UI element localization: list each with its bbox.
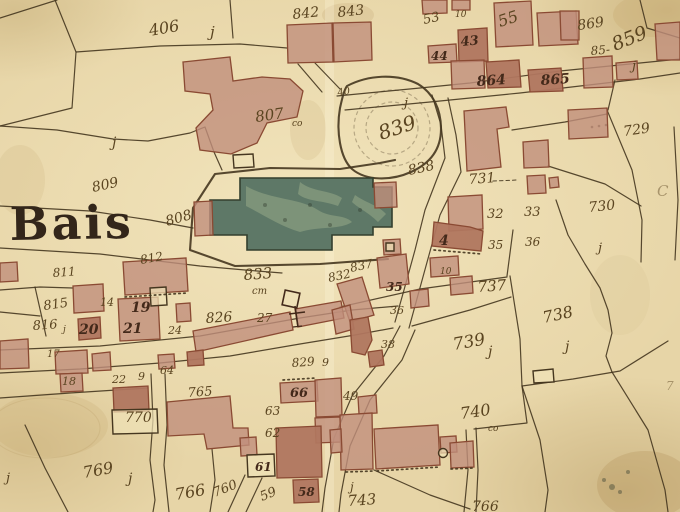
parcel-number: co [292, 119, 303, 129]
parcel-number: 843 [337, 2, 365, 21]
map-mark [626, 470, 630, 474]
map-mark [308, 203, 312, 207]
parcel-boundary-line [0, 312, 40, 316]
church-west-wing [194, 201, 213, 236]
parcel-number: 32 [487, 207, 504, 222]
map-mark [358, 208, 362, 212]
parcel-boundary-line [510, 276, 522, 386]
parcel-number: 737 [477, 276, 507, 296]
parcel-number: co [488, 424, 499, 434]
parcel-number: C [657, 182, 669, 200]
parcel-number: 21 [122, 321, 142, 337]
building [358, 395, 377, 414]
building [176, 303, 191, 322]
map-mark [609, 484, 615, 490]
parcel-number: 842 [292, 4, 320, 23]
building [386, 243, 394, 251]
parcel-number: 807 [254, 104, 285, 126]
parcel-number: 35 [386, 280, 403, 294]
building [452, 0, 470, 10]
building [150, 287, 167, 306]
parcel-number: 730 [588, 197, 616, 216]
building [374, 425, 440, 469]
building [0, 262, 18, 282]
building [0, 339, 29, 369]
parcel-number: j [61, 325, 66, 335]
parcel-number: j [562, 339, 570, 355]
parcel-number: 49 [342, 389, 359, 403]
parcel-boundary-line [76, 44, 287, 52]
building [287, 23, 333, 63]
parcel-number: j [401, 96, 408, 111]
parcel-number: 740 [459, 400, 492, 423]
parcel-number: 38 [381, 338, 395, 351]
parcel-number: 59 [258, 485, 279, 505]
parcel-number: 815 [42, 296, 69, 314]
parcel-number: 816 [32, 317, 58, 334]
building [330, 429, 342, 453]
parcel-number: 859 [609, 22, 651, 56]
building [533, 369, 554, 383]
parcel-number: 731 [468, 170, 496, 188]
parcel-number: 729 [622, 120, 651, 140]
parcel-number: j [109, 135, 117, 151]
place-title: Bais [9, 195, 134, 251]
building [340, 413, 373, 470]
parcel-boundary-line [230, 0, 233, 38]
parcel-boundary-line [283, 378, 316, 380]
building [523, 140, 549, 168]
parcel-boundary-line [493, 180, 517, 181]
parcel-boundary-line [374, 470, 470, 509]
parcel-number: 20 [78, 322, 99, 338]
building [183, 57, 303, 154]
parcel-number: 770 [125, 410, 152, 426]
parcel-number: 53 [422, 10, 441, 28]
building [368, 350, 384, 367]
parcel-number: 22 [111, 373, 126, 386]
parcel-number: 766 [173, 480, 206, 504]
parcel-number: 829 [291, 354, 315, 370]
parcel-number: 406 [146, 16, 180, 40]
parcel-number: 36 [525, 235, 541, 249]
building [450, 276, 473, 295]
map-mark [283, 218, 287, 222]
parcel-number: 18 [62, 375, 76, 388]
church [194, 178, 397, 250]
parcel-number: j [3, 471, 10, 486]
building [240, 437, 257, 456]
parcel-number: 66 [290, 386, 308, 401]
parcel-number: 9 [138, 370, 145, 383]
parcel-number: 769 [81, 458, 114, 482]
parcel-boundary-line [507, 230, 513, 276]
parcel-number: 766 [472, 499, 499, 512]
parcel-number: 865 [540, 71, 570, 89]
parcel-number: 27 [256, 311, 273, 325]
building [568, 108, 608, 139]
parcel-number: j [207, 23, 215, 41]
building [233, 154, 254, 168]
parcel-boundary-line [210, 449, 215, 512]
map-mark [602, 478, 606, 482]
parcel-number: 62 [265, 426, 280, 440]
map-mark [618, 490, 622, 494]
parcel-number: 809 [91, 175, 121, 196]
parcel-number: 10 [440, 267, 452, 277]
parcel-number: 837 [349, 256, 375, 275]
parcel-number: 869 [576, 14, 605, 34]
map-mark [263, 203, 267, 207]
lane-edge [164, 374, 169, 512]
parcel-number: 33 [524, 205, 541, 220]
parcel-boundary-line [346, 471, 374, 472]
building [55, 350, 88, 374]
parcel-number: 838 [407, 158, 437, 179]
parcel-number: 811 [52, 264, 76, 280]
parcel-number: 833 [243, 264, 273, 284]
parcel-boundary-line [522, 386, 548, 512]
parcel-number: 808 [164, 207, 194, 230]
church-east-wing [374, 182, 397, 208]
building [549, 177, 559, 188]
parcel-number: 839 [375, 110, 419, 145]
map-canvas: Bais406j84284353105586985985-j4344864865… [0, 0, 680, 512]
building [450, 441, 474, 468]
parcel-number: 17 [47, 349, 60, 360]
parcel-number: 64 [160, 364, 174, 377]
building [167, 396, 249, 449]
building [464, 107, 509, 171]
parcel-number: 58 [298, 485, 315, 499]
building [113, 386, 149, 412]
parcel-number: cm [252, 286, 267, 297]
cadastral-map[interactable]: Bais406j84284353105586985985-j4344864865… [0, 0, 680, 512]
parcel-number: 826 [205, 309, 233, 327]
parcel-number: 14 [100, 296, 114, 309]
parcel-number: 739 [451, 330, 487, 355]
building [560, 11, 579, 40]
parcel-number: j [595, 241, 602, 256]
building [410, 289, 429, 308]
parcel-number: j [125, 471, 133, 487]
parcel-boundary-line [0, 0, 76, 126]
building [187, 350, 204, 366]
building [92, 352, 111, 371]
parcel-boundary-line [0, 0, 57, 18]
building [583, 56, 613, 88]
parcel-boundary-line [298, 64, 322, 92]
parcel-boundary-line [0, 287, 73, 290]
parcel-number: 738 [541, 302, 575, 327]
parcel-number: 63 [265, 404, 281, 418]
parcel-number: 85- [590, 42, 610, 58]
parcel-number: 35 [488, 238, 503, 252]
parcel-number: 4 [439, 233, 449, 249]
parcel-number: 40 [336, 86, 352, 99]
paper-stain [597, 451, 680, 512]
map-rect [282, 290, 300, 308]
lane-edge [150, 374, 155, 512]
well-circle-icon [439, 449, 448, 458]
parcel-number: 24 [167, 324, 182, 337]
parcel-number: 44 [431, 49, 448, 63]
parcel-number: 9 [322, 356, 329, 369]
parcel-number: 10 [455, 10, 467, 20]
parcel-number: 864 [476, 72, 506, 90]
parcel-number: 765 [187, 384, 213, 401]
paper-stain [590, 255, 650, 335]
parcel-number: 7 [666, 379, 674, 393]
building [333, 22, 372, 62]
building [276, 426, 322, 478]
map-mark [328, 223, 332, 227]
parcel-boundary-line [674, 127, 678, 260]
parcel-number: 36 [390, 304, 404, 317]
parcel-number: 43 [460, 33, 479, 50]
building [527, 175, 546, 194]
building [655, 22, 680, 60]
parcel-number: 19 [131, 300, 151, 316]
building [350, 317, 372, 355]
building [315, 378, 342, 417]
parcel-number: 61 [255, 460, 272, 474]
